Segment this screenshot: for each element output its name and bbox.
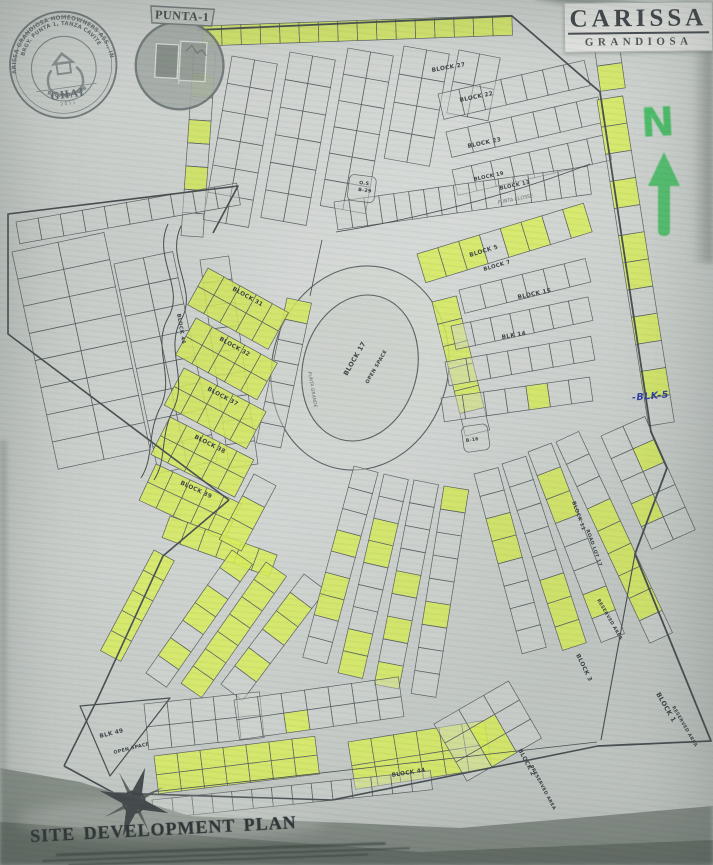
lot bbox=[237, 717, 263, 740]
highlighted-lot bbox=[473, 16, 493, 37]
lot bbox=[288, 166, 316, 198]
lot-block bbox=[234, 677, 404, 740]
highlighted-lot bbox=[200, 748, 225, 770]
highlighted-lot bbox=[597, 63, 625, 92]
lot bbox=[144, 702, 169, 727]
lot bbox=[412, 106, 440, 138]
lot bbox=[352, 131, 379, 161]
lot bbox=[378, 697, 404, 720]
highlighted-lot bbox=[348, 738, 374, 765]
lot bbox=[291, 783, 313, 804]
lot bbox=[354, 700, 380, 723]
highlighted-lot bbox=[284, 710, 310, 733]
lot bbox=[307, 707, 333, 730]
lot bbox=[169, 722, 194, 747]
lot bbox=[240, 114, 267, 145]
lot bbox=[351, 680, 377, 703]
lot bbox=[170, 191, 196, 217]
lot bbox=[82, 206, 108, 232]
highlighted-lot bbox=[454, 17, 474, 38]
highlighted-lot bbox=[269, 739, 294, 761]
lot bbox=[308, 56, 336, 88]
lot-block bbox=[100, 550, 174, 661]
lot bbox=[257, 693, 283, 716]
block-label: O.S bbox=[359, 180, 370, 187]
lot bbox=[371, 775, 393, 796]
lot bbox=[281, 690, 307, 713]
highlighted-lot bbox=[188, 120, 212, 145]
block-label: BLK 49 bbox=[99, 728, 124, 740]
highlighted-lot bbox=[184, 166, 208, 191]
lot-block bbox=[384, 46, 449, 166]
punta1-seal: PUNTA-1 bbox=[121, 0, 239, 117]
highlighted-lot bbox=[248, 761, 273, 783]
lot bbox=[375, 677, 401, 700]
lot bbox=[437, 509, 465, 536]
lot bbox=[38, 214, 64, 240]
block-label: OPEN SPACE bbox=[113, 741, 150, 756]
lot bbox=[303, 84, 331, 116]
lot bbox=[304, 687, 330, 710]
lot bbox=[415, 647, 443, 674]
lot bbox=[361, 78, 388, 108]
lot bbox=[411, 670, 439, 697]
lot bbox=[260, 713, 286, 736]
lot bbox=[426, 578, 454, 605]
highlighted-lot bbox=[492, 15, 512, 36]
lot bbox=[570, 336, 595, 363]
highlighted-lot bbox=[246, 742, 271, 764]
north-arrow-icon bbox=[642, 150, 686, 238]
lot bbox=[186, 143, 210, 168]
lot bbox=[418, 624, 446, 651]
arrow-shaft bbox=[658, 180, 670, 236]
lot bbox=[407, 134, 435, 166]
block-label: PRESERVED AREA bbox=[528, 764, 557, 811]
lot bbox=[250, 60, 277, 91]
lot bbox=[190, 697, 215, 722]
project-title-block: CARISSA GRANDIOSA bbox=[564, 1, 713, 53]
scanned-site-plan-page: BLOCK 27BLOCK 22BLOCK 23BLOCK 19BLOCK 13… bbox=[0, 0, 713, 865]
lot bbox=[429, 555, 457, 582]
lot bbox=[505, 386, 530, 413]
highlighted-lot bbox=[393, 731, 419, 758]
boundary-line bbox=[601, 554, 635, 740]
lot bbox=[568, 377, 593, 404]
north-label: N bbox=[640, 99, 676, 147]
highlighted-lot bbox=[440, 486, 468, 513]
lot bbox=[441, 395, 466, 422]
lot bbox=[16, 218, 42, 244]
lot bbox=[104, 203, 130, 229]
lot bbox=[167, 699, 192, 724]
highlighted-lot bbox=[422, 601, 450, 628]
highlighted-lot bbox=[177, 750, 202, 772]
ghai-seal: CARISSA GRANDIOSA HOMEOWNERS ASS., INC. … bbox=[0, 0, 127, 127]
highlighted-lot bbox=[292, 736, 317, 758]
lot bbox=[366, 52, 393, 82]
lot bbox=[245, 87, 272, 118]
lot bbox=[433, 532, 461, 559]
project-subtitle: GRANDIOSA bbox=[565, 35, 712, 49]
highlighted-lot bbox=[371, 735, 397, 762]
lot bbox=[60, 210, 86, 236]
lot bbox=[235, 142, 262, 173]
lot-block bbox=[202, 15, 513, 46]
seal-photo-left bbox=[155, 44, 179, 79]
lot bbox=[328, 683, 354, 706]
lot bbox=[547, 380, 572, 407]
lot bbox=[483, 389, 508, 416]
project-title: CARISSA bbox=[567, 5, 709, 34]
highlighted-lot bbox=[223, 745, 248, 767]
lot bbox=[181, 212, 205, 237]
lot bbox=[283, 194, 311, 226]
lot bbox=[298, 111, 326, 143]
highlighted-lot bbox=[526, 383, 551, 410]
block-label: BLOCK 3 bbox=[574, 653, 592, 682]
lot bbox=[357, 105, 384, 135]
lot bbox=[148, 195, 174, 221]
highlighted-lot bbox=[434, 17, 454, 38]
lot bbox=[146, 724, 171, 749]
lot bbox=[234, 697, 260, 720]
seal-banner-label: PUNTA-1 bbox=[155, 7, 210, 24]
lot bbox=[462, 392, 487, 419]
lot bbox=[293, 139, 321, 171]
site-plan-map: BLOCK 27BLOCK 22BLOCK 23BLOCK 19BLOCK 13… bbox=[0, 0, 713, 865]
lot bbox=[331, 703, 357, 726]
lot bbox=[126, 199, 152, 225]
lot bbox=[193, 720, 218, 745]
